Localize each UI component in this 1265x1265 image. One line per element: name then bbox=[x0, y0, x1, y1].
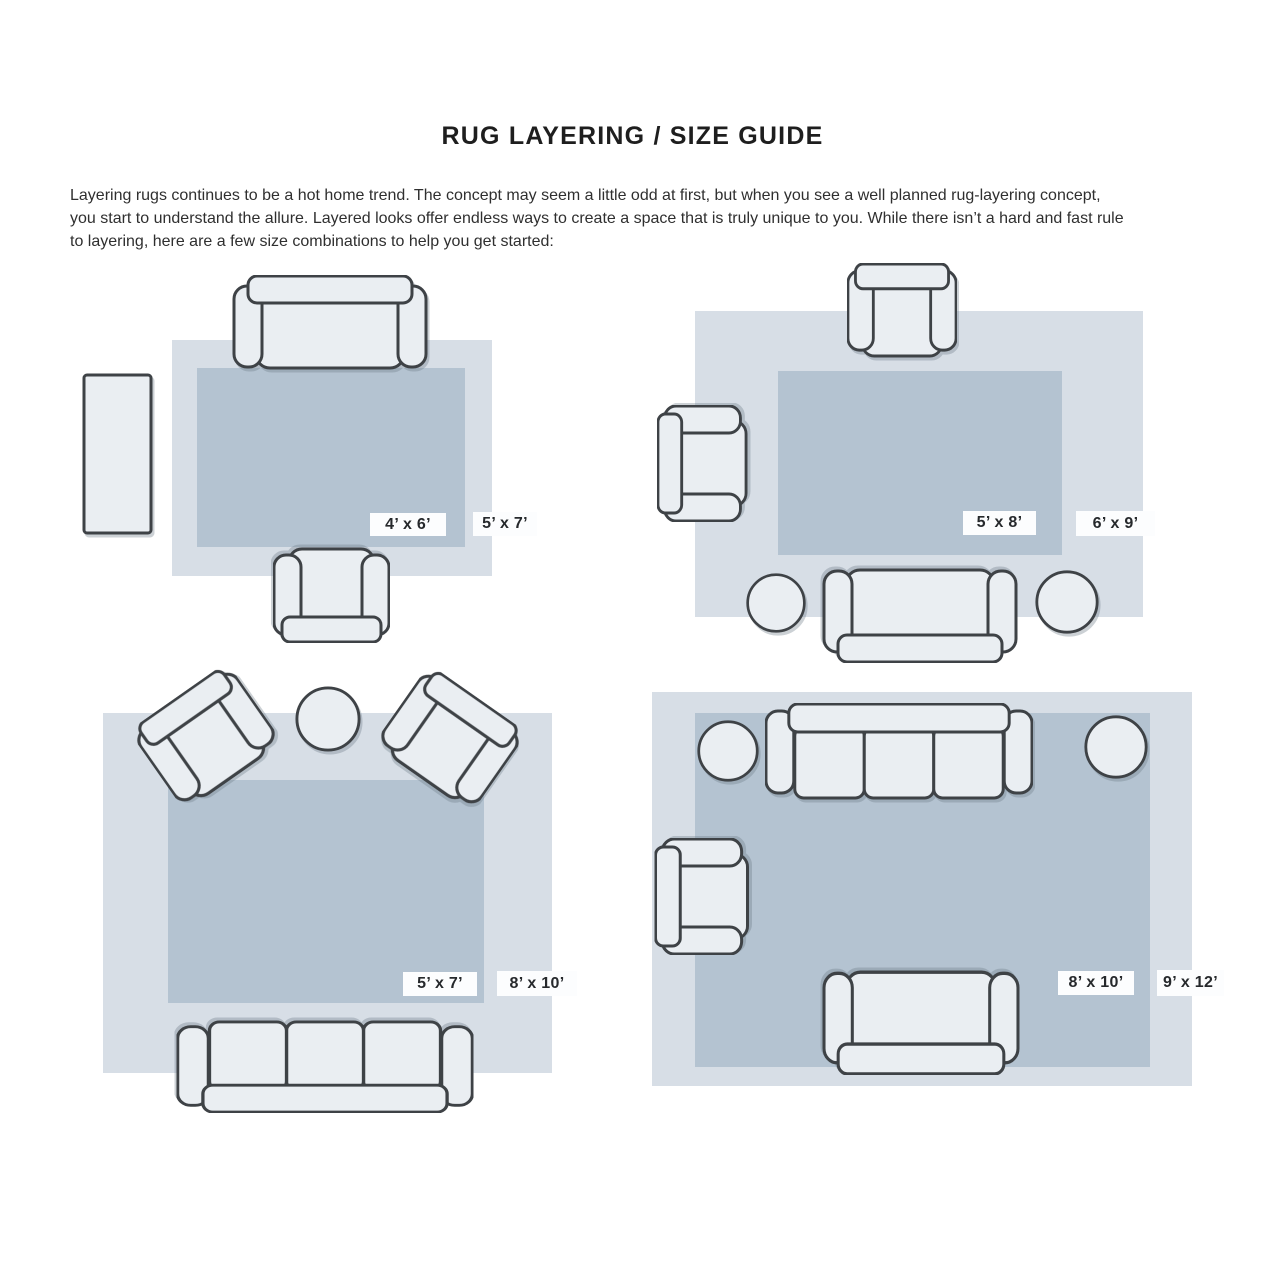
size-badge-inner: 8’ x 10’ bbox=[1058, 971, 1134, 995]
layout-bottom-left bbox=[103, 663, 552, 1112]
rug-layout-diagrams bbox=[0, 0, 1265, 1265]
sofa-top-view bbox=[234, 276, 426, 368]
size-badge-outer: 9’ x 12’ bbox=[1157, 970, 1224, 996]
sofa-top-view bbox=[766, 704, 1032, 798]
layout-bottom-right bbox=[652, 692, 1192, 1086]
size-badge-outer: 5’ x 7’ bbox=[473, 512, 537, 536]
armchair-top-view bbox=[274, 549, 389, 642]
rug-size-guide-page: RUG LAYERING / SIZE GUIDE Layering rugs … bbox=[0, 0, 1265, 1265]
sofa-top-view bbox=[824, 570, 1016, 662]
layout-top-left bbox=[84, 276, 492, 642]
pouf-top-view bbox=[748, 575, 805, 632]
inner-rug bbox=[168, 780, 484, 1003]
size-badge-outer: 8’ x 10’ bbox=[497, 971, 577, 996]
size-badge-inner: 5’ x 7’ bbox=[403, 972, 477, 996]
loveseat-top-view bbox=[824, 972, 1018, 1074]
size-badge-inner: 5’ x 8’ bbox=[963, 511, 1036, 535]
size-badge-outer: 6’ x 9’ bbox=[1076, 511, 1155, 536]
sofa-top-view bbox=[178, 1022, 473, 1112]
bench-top-view bbox=[84, 375, 151, 533]
size-badge-inner: 4’ x 6’ bbox=[370, 513, 446, 536]
layout-top-right bbox=[658, 264, 1143, 662]
armchair-top-view bbox=[655, 839, 747, 954]
armchair-top-view bbox=[658, 406, 746, 521]
pouf-top-view bbox=[1086, 717, 1146, 777]
armchair-top-view bbox=[848, 264, 956, 356]
round-table-top-view bbox=[297, 688, 359, 750]
pouf-top-view bbox=[1037, 572, 1097, 632]
pouf-top-view bbox=[699, 722, 758, 781]
